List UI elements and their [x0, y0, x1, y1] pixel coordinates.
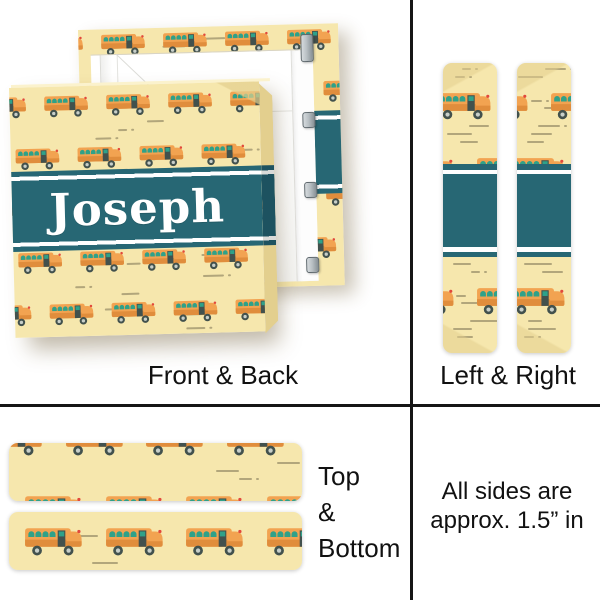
- school-bus-icon: [322, 77, 344, 104]
- front-back-label: Front & Back: [110, 360, 336, 391]
- speed-dash-decoration: [538, 125, 560, 127]
- school-bus-pattern: [9, 443, 302, 501]
- school-bus-icon: [65, 443, 125, 459]
- school-bus-icon: [9, 443, 44, 459]
- school-bus-icon: [550, 90, 572, 122]
- speed-dash-decoration: [202, 274, 224, 277]
- bottom-edge-strip: [9, 512, 302, 570]
- speed-dash-decoration: [89, 286, 92, 288]
- speed-dash-decoration: [131, 129, 134, 131]
- quadrant-divider-horizontal: [0, 404, 600, 407]
- school-bus-icon: [77, 144, 124, 171]
- school-bus-icon: [24, 525, 84, 559]
- left-right-label: Left & Right: [398, 360, 600, 391]
- top-bottom-label: Top & Bottom: [318, 458, 400, 566]
- speed-dash-decoration: [447, 133, 472, 135]
- pattern-corner-curl: [517, 323, 571, 353]
- size-note-line: approx. 1.5” in: [407, 506, 600, 535]
- top-bottom-label-line: &: [318, 494, 400, 530]
- speed-dash-decoration: [484, 271, 487, 273]
- binder-ring-icon: [302, 112, 315, 128]
- school-bus-icon: [111, 299, 158, 326]
- speed-dash-decoration: [564, 125, 567, 127]
- school-bus-icon: [185, 493, 245, 501]
- speed-dash-decoration: [524, 263, 552, 265]
- speed-dash-decoration: [75, 286, 85, 288]
- school-bus-icon: [517, 285, 567, 317]
- speed-dash-decoration: [122, 293, 140, 295]
- school-bus-icon: [105, 525, 165, 559]
- binder-ring-icon: [300, 34, 314, 62]
- school-bus-icon: [266, 525, 302, 559]
- size-note: All sides are approx. 1.5” in: [407, 477, 600, 535]
- binder-ring-icon: [304, 182, 317, 198]
- school-bus-icon: [266, 493, 302, 501]
- school-bus-icon: [173, 298, 220, 325]
- speed-dash-decoration: [186, 327, 205, 329]
- speed-dash-decoration: [96, 137, 111, 139]
- product-preview-sheet: Joseph Front & Back Left & Right Top: [0, 0, 600, 600]
- personalized-name: Joseph: [49, 183, 226, 235]
- name-band: Joseph: [11, 165, 263, 252]
- speed-dash-decoration: [531, 133, 552, 135]
- speed-dash-decoration: [216, 470, 239, 472]
- speed-dash-decoration: [92, 562, 117, 564]
- speed-dash-decoration: [256, 478, 259, 480]
- speed-dash-decoration: [527, 141, 543, 143]
- school-bus-icon: [167, 90, 214, 117]
- school-bus-icon: [9, 302, 33, 329]
- speed-dash-decoration: [209, 327, 212, 329]
- speed-dash-decoration: [460, 141, 478, 143]
- school-bus-icon: [139, 142, 186, 169]
- pattern-corner-curl: [443, 323, 497, 353]
- pattern-corner-curl: [517, 63, 571, 93]
- school-bus-icon: [24, 493, 84, 501]
- name-band-side-edge: [261, 165, 276, 245]
- school-bus-icon: [145, 443, 205, 459]
- pattern-corner-curl: [443, 63, 497, 93]
- school-bus-icon: [328, 285, 345, 292]
- school-bus-icon: [200, 141, 247, 168]
- school-bus-icon: [105, 493, 165, 501]
- school-bus-icon: [15, 146, 62, 173]
- top-bottom-label-line: Bottom: [318, 530, 400, 566]
- school-bus-icon: [141, 246, 188, 273]
- school-bus-icon: [517, 90, 530, 122]
- binder-front-cover: Joseph: [9, 81, 265, 337]
- left-spine-strip: [443, 63, 497, 353]
- school-bus-icon: [476, 285, 498, 317]
- speed-dash-decoration: [542, 271, 563, 273]
- top-edge-strip: [9, 443, 302, 501]
- speed-dash-decoration: [118, 129, 127, 131]
- speed-dash-decoration: [115, 137, 118, 139]
- speed-dash-decoration: [471, 271, 480, 273]
- top-bottom-label-line: Top: [318, 458, 400, 494]
- binder-ring-icon: [306, 257, 319, 273]
- school-bus-icon: [203, 245, 250, 272]
- speed-dash-decoration: [277, 462, 300, 464]
- name-band-right-edge: [517, 164, 571, 257]
- school-bus-icon: [49, 301, 96, 328]
- school-bus-pattern: [9, 512, 302, 570]
- school-bus-icon: [17, 250, 64, 277]
- school-bus-icon: [443, 285, 456, 317]
- school-bus-icon: [226, 443, 286, 459]
- speed-dash-decoration: [239, 478, 252, 480]
- school-bus-icon: [9, 95, 28, 122]
- school-bus-icon: [78, 33, 85, 60]
- speed-dash-decoration: [531, 100, 542, 102]
- school-bus-icon: [443, 90, 493, 122]
- speed-dash-decoration: [469, 125, 489, 127]
- size-note-line: All sides are: [407, 477, 600, 506]
- speed-dash-decoration: [257, 148, 260, 150]
- speed-dash-decoration: [453, 263, 471, 265]
- school-bus-icon: [43, 93, 90, 120]
- right-spine-strip: [517, 63, 571, 353]
- speed-dash-decoration: [147, 120, 165, 122]
- name-band-left-edge: [443, 164, 497, 257]
- school-bus-icon: [105, 91, 152, 118]
- school-bus-icon: [235, 296, 266, 323]
- school-bus-icon: [185, 525, 245, 559]
- pattern-corner-curl: [215, 81, 260, 106]
- name-band-back-edge: [314, 110, 342, 194]
- speed-dash-decoration: [127, 262, 141, 264]
- speed-dash-decoration: [228, 274, 231, 276]
- speed-dash-decoration: [456, 295, 466, 297]
- school-bus-icon: [79, 248, 126, 275]
